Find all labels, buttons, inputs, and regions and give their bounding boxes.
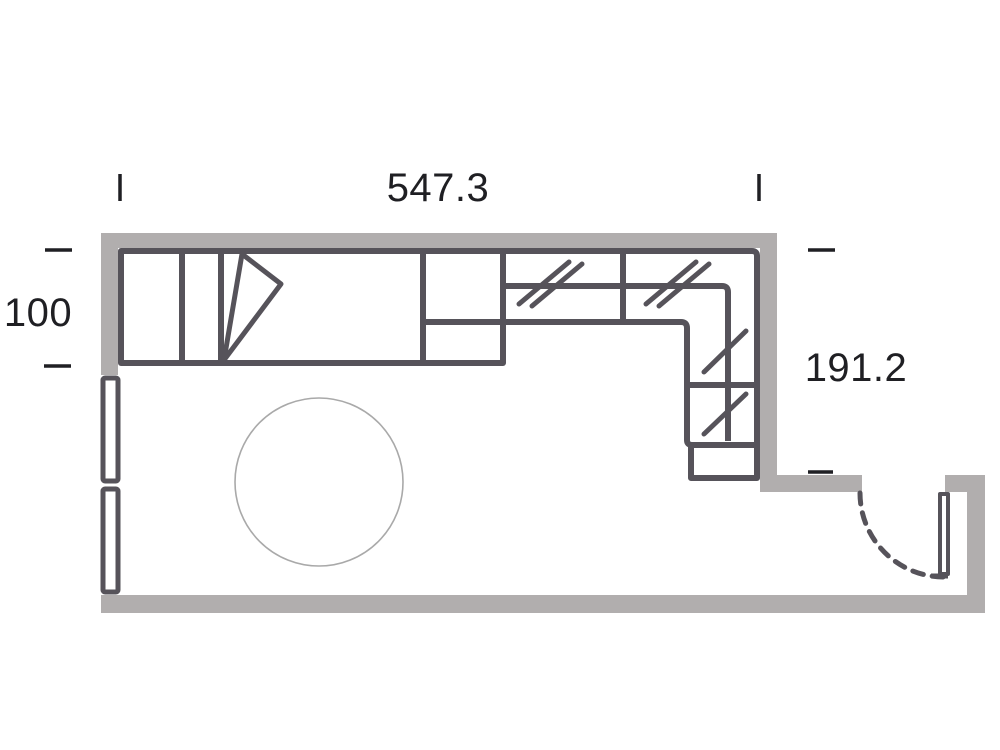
furniture [103,251,948,592]
wall-right [760,240,777,492]
clothes-rail-line [503,286,728,441]
wall-step [760,475,862,492]
window-pane [103,489,118,592]
wall-far-right [967,475,985,613]
floor-plan: 547.3 100 191.2 [0,0,1000,750]
door-swing-arc-icon [860,493,944,577]
floor-plan-canvas: 547.3 100 191.2 [0,0,1000,750]
window [103,378,118,592]
window-pane [103,378,118,481]
entry-door [860,493,948,577]
wardrobe-left-unit [121,251,503,363]
wall-left [101,233,118,375]
round-table [235,398,403,566]
dimension-label-left: 100 [4,291,72,335]
hinged-door-swing-icon [224,254,281,360]
dimension-label-top: 547.3 [387,166,490,210]
closet-end-cabinet [691,445,757,478]
door-leaf [940,494,948,574]
wall-top [101,233,777,248]
wall-bottom [101,595,985,613]
dimension-label-right: 191.2 [805,346,908,390]
